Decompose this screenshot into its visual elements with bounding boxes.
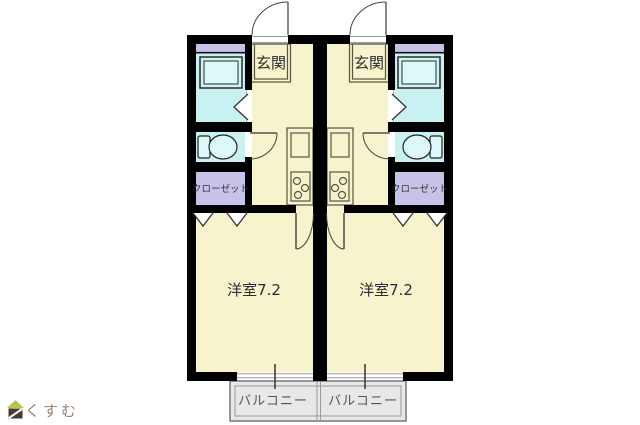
left-laundry-space xyxy=(196,44,245,53)
closet-label: クローゼット xyxy=(192,183,249,195)
room-label: 洋室7.2 xyxy=(227,281,281,299)
balcony-label: バルコニー xyxy=(328,394,398,409)
entrance-door-icon xyxy=(350,2,386,35)
balcony-label: バルコニー xyxy=(238,394,308,409)
toilet-icon xyxy=(403,135,442,159)
toilet-icon xyxy=(198,135,237,159)
bathtub-icon xyxy=(204,61,238,84)
entrance-label: 玄関 xyxy=(256,54,286,72)
room-label: 洋室7.2 xyxy=(359,281,413,299)
right-laundry-space xyxy=(395,44,444,53)
floor-plan: 玄関 玄関 クローゼット クローゼット 洋室7.2 洋室7.2 バルコニー バル… xyxy=(0,0,640,425)
brand-logo: らくすむ xyxy=(7,400,79,421)
entrance-label: 玄関 xyxy=(354,54,384,72)
entrance-door-icon xyxy=(252,2,288,35)
closet-label: クローゼット xyxy=(391,183,448,195)
floor-plan-page: 玄関 玄関 クローゼット クローゼット 洋室7.2 洋室7.2 バルコニー バル… xyxy=(0,0,640,425)
bathtub-icon xyxy=(402,61,436,84)
house-icon xyxy=(7,400,24,419)
